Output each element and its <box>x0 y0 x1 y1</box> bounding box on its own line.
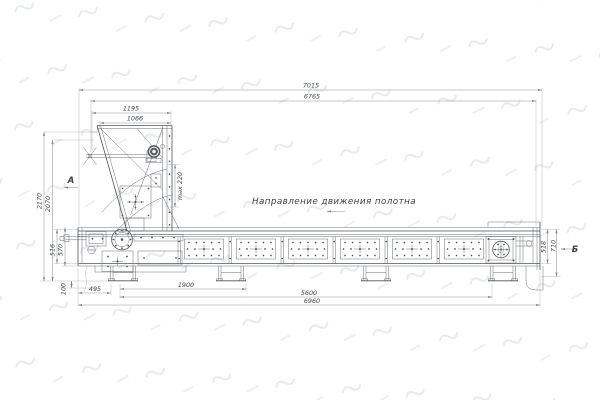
dim-hopper-outer: 1195 <box>123 105 139 113</box>
dim-frame-left-inner: 516 <box>49 244 57 256</box>
dim-drive-section: 1900 <box>178 281 194 289</box>
dim-hopper-inner: 1066 <box>127 115 143 123</box>
dim-overall-bottom: 6960 <box>304 297 320 305</box>
dim-support-span: 5600 <box>301 289 317 297</box>
drawing-canvas: 7015 6765 1195 1066 max 220 2170 2070 51… <box>0 0 600 400</box>
dim-frame-right-inner: 518 <box>540 241 548 253</box>
view-label-a: А <box>67 176 75 186</box>
dim-ground-clearance: 100 <box>60 283 68 295</box>
dim-foot-offset: 495 <box>89 285 101 293</box>
dim-frame-left-outer: 570 <box>57 244 65 256</box>
dim-frame-right-outer: 710 <box>550 240 558 252</box>
conveyor-technical-drawing: 7015 6765 1195 1066 max 220 2170 2070 51… <box>0 0 600 400</box>
dim-height-outer: 2170 <box>36 193 44 209</box>
dim-top-inner: 6765 <box>304 93 320 101</box>
view-label-b: Б <box>572 245 579 255</box>
dim-overall-top: 7015 <box>303 82 319 90</box>
belt-direction-note: Направление движения полотна <box>252 197 416 207</box>
dim-max-layer: max 220 <box>176 172 184 200</box>
dim-height-inner: 2070 <box>44 196 52 212</box>
